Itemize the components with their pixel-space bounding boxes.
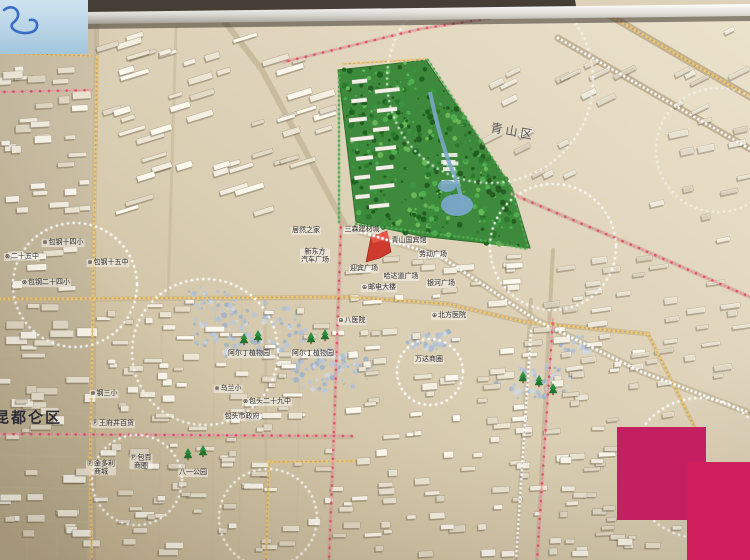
city-model-photo: 青山区 昆都仑区 居然之家三森建材城新东方 汽车广场青山国宾馆劳动广场迎宾广场哈… [0, 0, 750, 560]
magenta-patch-lower [687, 462, 750, 560]
model-canvas [0, 0, 750, 560]
